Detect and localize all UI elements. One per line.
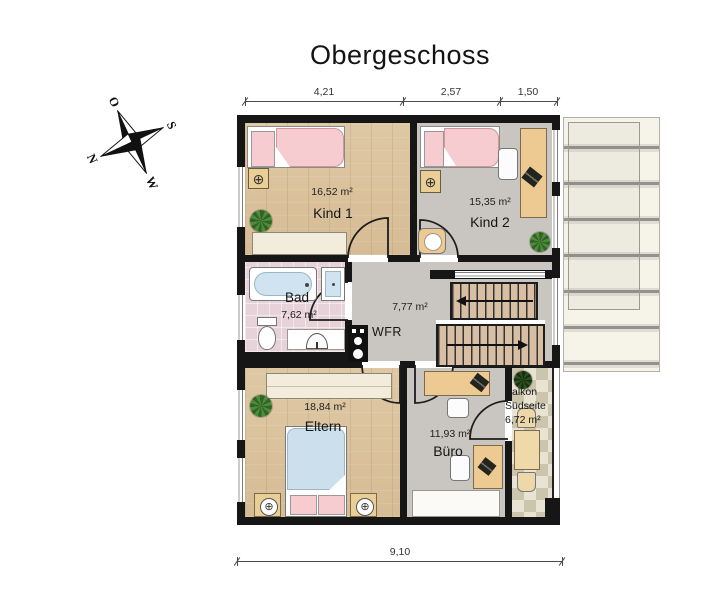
floorplan: ⊕ ⊕: [237, 115, 560, 525]
kind2-area-label: 15,35 m²: [469, 196, 510, 208]
eltern-pillow-left: [290, 495, 317, 515]
kind1-bed: [247, 126, 345, 168]
eltern-area-label: 18,84 m²: [304, 401, 345, 413]
dim-label-top-left: 4,21: [314, 86, 334, 98]
kind2-armchair-cushion: [424, 233, 442, 251]
buero-area-label: 11,93 m²: [430, 428, 471, 440]
balkon-chair-bottom: [517, 472, 536, 492]
page-title: Obergeschoss: [237, 40, 563, 71]
compass-west-label: W: [143, 174, 161, 192]
bad-vanity-counter: [287, 329, 345, 350]
balkon-name-label: Balkon: [505, 385, 546, 399]
wfr-knob: [360, 329, 364, 333]
kind1-name-label: Kind 1: [313, 205, 353, 221]
eltern-nightstand-left: ⊕: [254, 493, 281, 517]
kind2-bed-pillow: [424, 131, 444, 167]
bad-sink-faucet: [316, 342, 318, 349]
eltern-duvet: [287, 428, 345, 490]
bad-area-label: 7,62 m²: [281, 309, 317, 321]
kind2-bed: [420, 126, 500, 168]
kind1-plant-icon: [250, 210, 272, 232]
kind2-plant-icon: [530, 232, 550, 252]
compass-north-label: N: [84, 152, 100, 166]
balkon-label-block: Balkon Südseite 6,72 m²: [505, 385, 546, 427]
wfr-label: WFR: [372, 325, 402, 339]
stairs-up-arrow-line: [465, 300, 533, 302]
toilet-tank: [257, 317, 277, 326]
dim-label-top-right: 1,50: [518, 86, 538, 98]
stairs-down-arrow-head: [518, 340, 528, 350]
eltern-nightstand-right: ⊕: [350, 493, 377, 517]
roof-dormer-outline: [568, 122, 640, 310]
buero-name-label: Büro: [433, 443, 463, 459]
buero-chair-top: [447, 398, 469, 418]
kind2-chair: [498, 148, 518, 180]
eltern-pillow-right: [318, 495, 345, 515]
kind2-name-label: Kind 2: [470, 214, 510, 230]
compass-rose: O S W N: [74, 84, 190, 200]
compass-east-label: O: [106, 95, 123, 110]
compass-south-label: S: [164, 119, 180, 131]
kind2-radiator-icon: ⊕: [420, 170, 441, 193]
eltern-plant-icon: [250, 395, 272, 417]
dim-label-top-middle: 2,57: [441, 86, 461, 98]
kind1-area-label: 16,52 m²: [311, 186, 352, 198]
bad-tub-faucet: [305, 283, 309, 287]
kind1-sideboard: [252, 232, 347, 255]
wfr-appliance: [348, 325, 368, 362]
wfr-drum: [354, 337, 362, 345]
wfr-drum: [353, 349, 363, 359]
eltern-double-bed: [285, 426, 347, 517]
eltern-lamp-right-icon: ⊕: [356, 498, 374, 516]
dimension-line-bottom: [237, 561, 562, 562]
wardrobe-shelf-line: [267, 386, 391, 387]
balkon-orientation-label: Südseite: [505, 399, 546, 413]
toilet-bowl: [258, 326, 276, 350]
bad-name-label: Bad: [285, 290, 309, 305]
balkon-table: [514, 430, 540, 470]
eltern-wardrobe: [266, 373, 392, 399]
kind1-bed-pillow: [251, 131, 275, 167]
stairs-down-arrow-line: [447, 344, 519, 346]
kind2-armchair: [418, 228, 446, 254]
dim-label-bottom-total: 9,10: [390, 546, 410, 558]
eltern-name-label: Eltern: [305, 418, 342, 434]
bad-toilet: [255, 317, 279, 352]
wfr-knob: [352, 329, 356, 333]
eltern-lamp-left-icon: ⊕: [260, 498, 278, 516]
buero-sideboard: [412, 490, 500, 517]
stairs-up-arrow-head: [456, 296, 466, 306]
bad-shower: [321, 267, 345, 301]
bad-shower-drain: [332, 283, 335, 286]
hallway-area-label: 7,77 m²: [392, 301, 428, 313]
balkon-area-label: 6,72 m²: [505, 413, 546, 427]
roof-area: [563, 117, 660, 372]
kind1-bed-blanket: [276, 128, 344, 167]
kind1-radiator-icon: ⊕: [248, 168, 269, 189]
